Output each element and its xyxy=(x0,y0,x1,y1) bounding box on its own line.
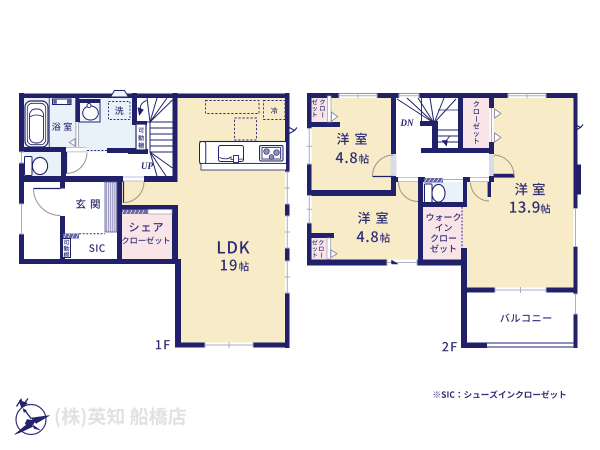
svg-text:DN: DN xyxy=(400,118,414,128)
svg-text:UP: UP xyxy=(141,161,153,171)
